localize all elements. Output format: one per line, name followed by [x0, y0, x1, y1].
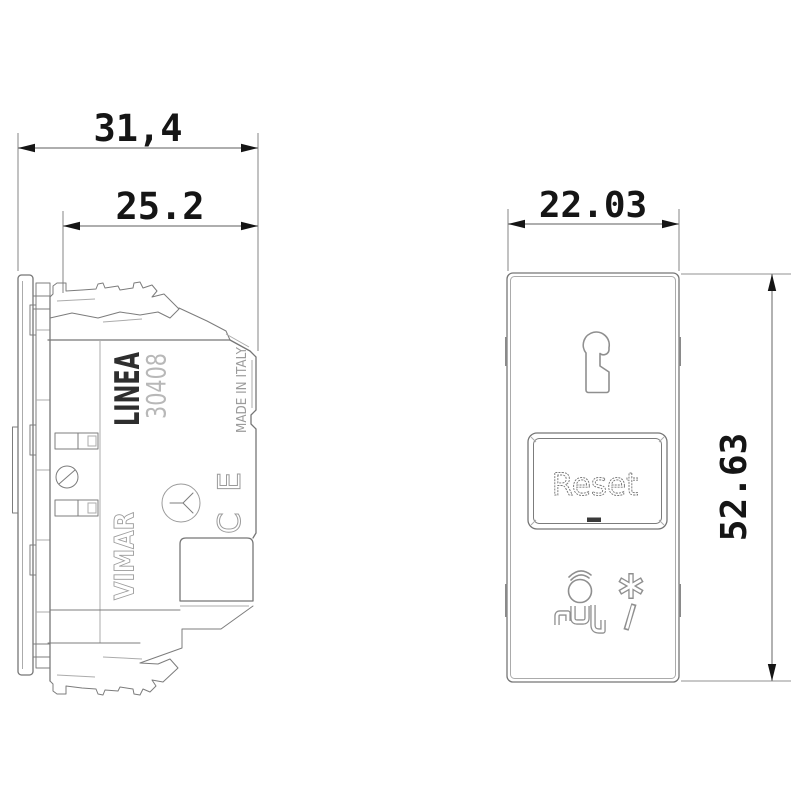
button-indicator-dash: [587, 518, 601, 523]
nurse-shoulders-icon: [557, 605, 603, 631]
arrowhead-up: [768, 274, 776, 291]
drawing-svg: 31,4 25.2: [0, 0, 800, 800]
made-in-italy-label: MADE IN ITALY: [235, 347, 250, 433]
arrowhead-right: [662, 220, 679, 228]
arrowhead-right: [241, 144, 258, 152]
vimar-logo-label: VIMAR: [109, 512, 140, 600]
model-number-label: 30408: [141, 353, 172, 419]
dim-label-31-4: 31,4: [93, 107, 182, 150]
side-module-labels: LINEA 30408 MADE IN ITALY VIMAR CE: [108, 347, 250, 600]
arrowhead-left: [508, 220, 525, 228]
side-fixing-slots: [55, 433, 98, 516]
front-view: 22.03 52.63: [506, 185, 791, 682]
pull-cord-slash-icon: [626, 604, 634, 630]
dimension-front-height: 52.63: [681, 274, 791, 681]
technical-drawing-sheet: 31,4 25.2: [0, 0, 800, 800]
ce-mark-label: CE: [212, 472, 248, 534]
side-top-latch: [50, 282, 179, 340]
side-view: 31,4 25.2: [13, 107, 259, 695]
side-button-bump: [13, 427, 19, 513]
dimension-side-module-width: 25.2: [63, 185, 258, 293]
certification-circle-icon: [162, 484, 200, 522]
side-terminal-block: [180, 538, 253, 601]
nurse-call-icon-group: [557, 571, 642, 631]
reset-label: Reset: [552, 467, 639, 503]
reset-button-drawing: Reset: [528, 433, 667, 529]
side-bottom-latch: [50, 643, 178, 695]
door-hanger-icon: [583, 332, 609, 393]
dimension-front-width: 22.03: [508, 185, 679, 271]
arrowhead-left: [18, 144, 35, 152]
dim-label-25-2: 25.2: [115, 185, 204, 228]
arrowhead-right: [241, 222, 258, 230]
dim-label-52-63: 52.63: [714, 433, 755, 541]
asterisk-icon: [620, 573, 643, 599]
arrowhead-left: [63, 222, 80, 230]
dim-label-22-03: 22.03: [539, 185, 647, 226]
arrowhead-down: [768, 664, 776, 681]
nurse-cap-head-icon: [569, 571, 592, 603]
